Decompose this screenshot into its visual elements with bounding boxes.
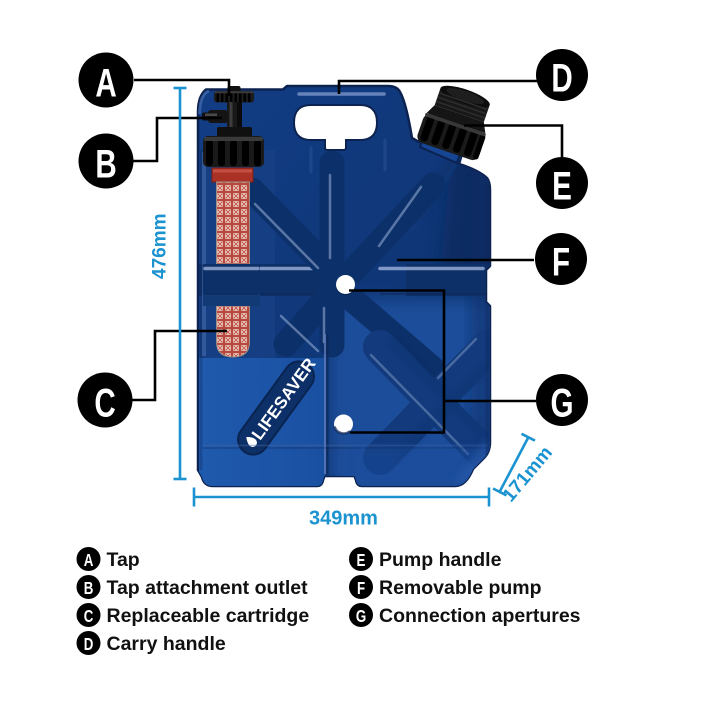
svg-text:B: B xyxy=(95,142,116,186)
svg-text:Tap attachment outlet: Tap attachment outlet xyxy=(107,577,309,599)
svg-text:Tap: Tap xyxy=(107,549,140,571)
svg-text:C: C xyxy=(94,381,115,425)
svg-text:F: F xyxy=(357,579,365,598)
svg-text:E: E xyxy=(357,551,366,570)
svg-text:Pump handle: Pump handle xyxy=(379,549,502,571)
svg-text:Connection apertures: Connection apertures xyxy=(379,605,581,627)
svg-text:G: G xyxy=(550,381,573,425)
svg-text:E: E xyxy=(552,164,572,208)
svg-text:A: A xyxy=(84,551,94,570)
svg-text:B: B xyxy=(84,579,94,598)
svg-text:Replaceable cartridge: Replaceable cartridge xyxy=(107,605,310,627)
svg-text:476mm: 476mm xyxy=(150,214,171,280)
svg-text:D: D xyxy=(551,56,572,100)
svg-text:Removable pump: Removable pump xyxy=(379,577,542,599)
svg-text:D: D xyxy=(84,635,94,654)
svg-text:A: A xyxy=(95,61,116,105)
svg-text:F: F xyxy=(552,240,570,284)
svg-text:Carry handle: Carry handle xyxy=(107,633,226,655)
svg-text:349mm: 349mm xyxy=(309,508,378,530)
svg-text:C: C xyxy=(84,607,94,626)
svg-text:G: G xyxy=(356,607,366,626)
